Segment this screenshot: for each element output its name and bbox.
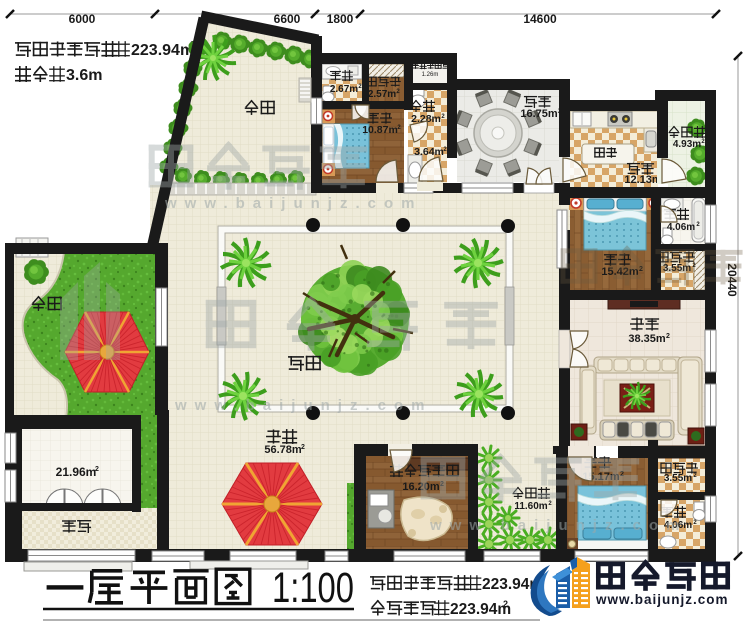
svg-text:16.75m: 16.75m bbox=[520, 108, 558, 120]
svg-text:56.78m: 56.78m bbox=[264, 444, 302, 456]
svg-text:2: 2 bbox=[503, 599, 508, 609]
svg-text:38.35m: 38.35m bbox=[628, 333, 666, 345]
svg-text:4.06m: 4.06m bbox=[667, 222, 695, 233]
svg-text:21.96m: 21.96m bbox=[56, 465, 97, 479]
svg-text:1:100: 1:100 bbox=[272, 564, 354, 612]
svg-text:2: 2 bbox=[666, 333, 670, 340]
svg-text:www.baijunjz.com: www.baijunjz.com bbox=[164, 195, 422, 212]
svg-text:1800: 1800 bbox=[327, 12, 354, 26]
svg-text:223.94m: 223.94m bbox=[131, 42, 194, 59]
svg-text:11.60m: 11.60m bbox=[514, 501, 547, 512]
svg-text:1.26m: 1.26m bbox=[422, 72, 439, 78]
svg-text:14600: 14600 bbox=[523, 12, 557, 26]
svg-text:www.baijunjz.com: www.baijunjz.com bbox=[595, 592, 729, 607]
svg-text:2.67m: 2.67m bbox=[330, 84, 358, 95]
svg-text:4.93m: 4.93m bbox=[673, 139, 701, 150]
svg-text:3.64m: 3.64m bbox=[414, 146, 444, 158]
svg-text:2.57m: 2.57m bbox=[368, 89, 396, 100]
svg-text:12.13m: 12.13m bbox=[624, 174, 662, 186]
svg-text:6600: 6600 bbox=[274, 12, 301, 26]
svg-text:6000: 6000 bbox=[69, 12, 96, 26]
svg-text:2: 2 bbox=[95, 466, 99, 473]
svg-text:10.87m: 10.87m bbox=[362, 124, 398, 136]
svg-text:2: 2 bbox=[301, 444, 305, 451]
svg-text:www.baijunjz.com: www.baijunjz.com bbox=[174, 397, 432, 414]
svg-text:www.baijunjz.com: www.baijunjz.com bbox=[429, 517, 687, 534]
svg-text:3.6m: 3.6m bbox=[66, 67, 102, 84]
svg-text:3.55m: 3.55m bbox=[664, 473, 692, 484]
